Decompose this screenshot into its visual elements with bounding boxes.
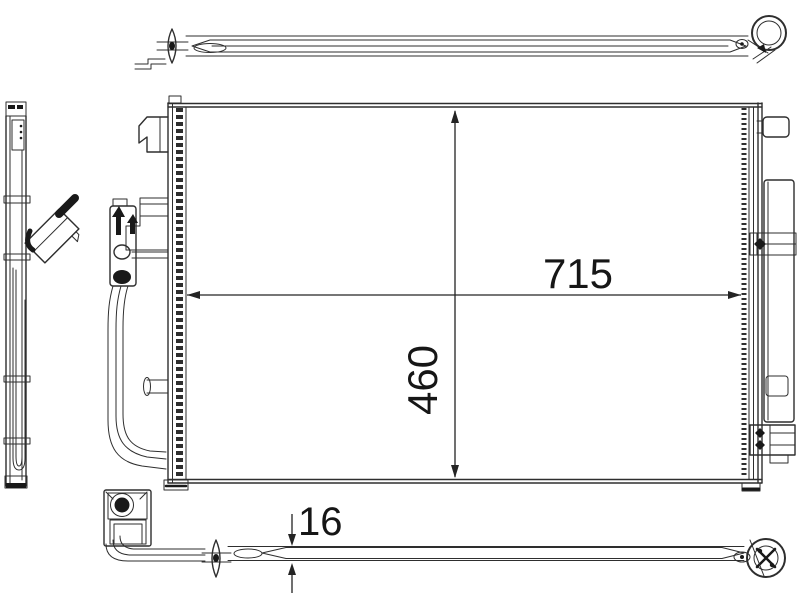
arrow-down-icon — [451, 465, 459, 478]
arrow-left-icon — [187, 291, 200, 299]
foot-bottom-right — [742, 483, 760, 491]
bottom-view-right-ring — [734, 539, 785, 577]
bottom-view-elbow-pipes — [106, 536, 205, 561]
top-view-left-fitting — [157, 29, 188, 63]
front-view — [108, 96, 796, 491]
mount-bracket-top-left — [139, 117, 168, 152]
condenser-technical-drawing: 715 460 16 — [0, 0, 800, 600]
port-dark-oval — [113, 270, 131, 284]
bottom-view-left-block — [104, 490, 151, 546]
inlet-connector-block — [110, 198, 168, 286]
arrow-up-icon — [451, 110, 459, 123]
bottom-view-tube — [262, 548, 744, 559]
side-view — [4, 102, 85, 488]
arrow-down-icon — [288, 534, 296, 546]
drier-clamp — [750, 233, 796, 255]
front-view-pipes — [108, 286, 166, 469]
height-dimension-label: 460 — [399, 345, 446, 415]
side-view-bracket — [25, 209, 84, 268]
top-view-left-bracket — [135, 59, 166, 69]
arrow-up-icon — [288, 563, 296, 575]
port-pin-dark-1 — [112, 206, 125, 235]
side-view-hook — [28, 231, 33, 250]
receiver-drier — [764, 180, 794, 422]
dimension-width: 715 — [187, 250, 741, 299]
bottom-view-grommet — [202, 540, 231, 577]
side-mount-pin — [144, 378, 169, 396]
drawing-svg: 715 460 16 — [0, 0, 800, 600]
dimension-height: 460 — [399, 110, 459, 478]
bottom-view — [104, 490, 785, 577]
width-dimension-label: 715 — [543, 250, 613, 297]
arrow-right-icon — [728, 291, 741, 299]
port-ring — [114, 245, 130, 259]
top-view — [135, 16, 786, 69]
outlet-connector-block — [750, 425, 795, 463]
thickness-dimension-label: 16 — [298, 500, 343, 544]
